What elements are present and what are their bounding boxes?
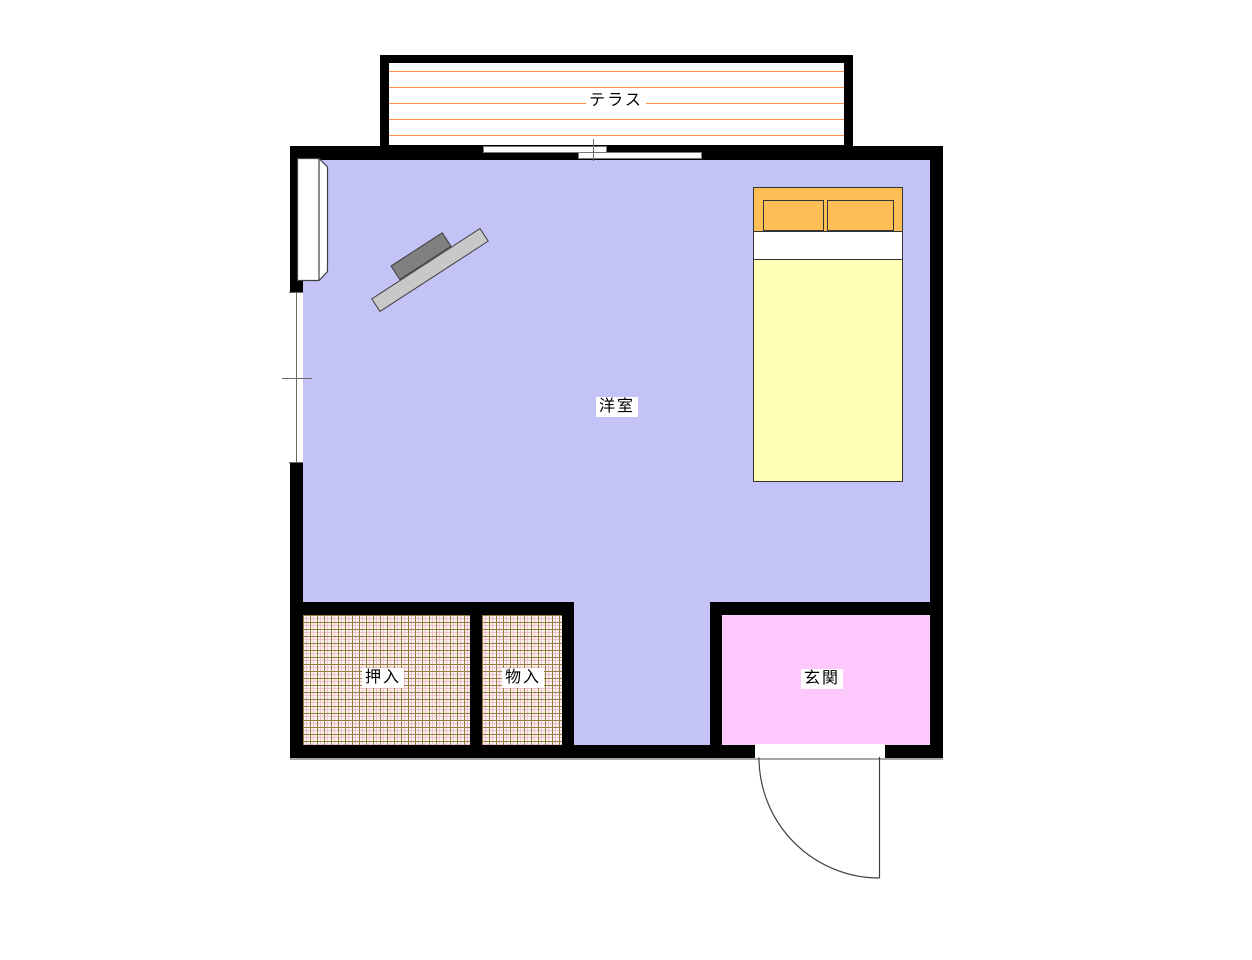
storage-label: 物入: [502, 668, 544, 688]
entrance-door: [759, 757, 880, 878]
linework-overlay: [0, 0, 1252, 960]
closet-label: 押入: [362, 668, 404, 688]
entrance-label: 玄関: [801, 669, 843, 689]
tall-cabinet: [298, 159, 328, 281]
terrace-label: テラス: [586, 91, 646, 111]
western-room-label: 洋室: [596, 397, 638, 417]
floorplan: テラス 洋室 押入 物入 玄関: [0, 0, 1252, 960]
terrace-sliding-door: [484, 139, 702, 161]
left-window: [282, 292, 312, 463]
